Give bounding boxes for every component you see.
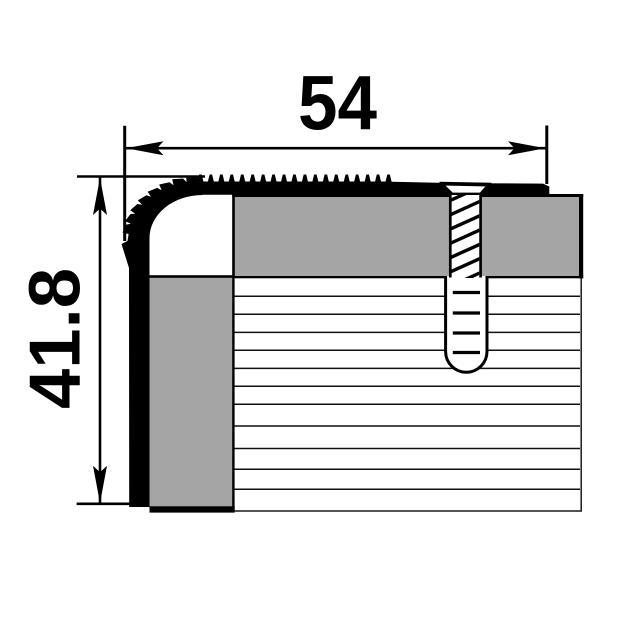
svg-text:54: 54	[298, 60, 377, 146]
svg-text:41.8: 41.8	[15, 268, 96, 409]
